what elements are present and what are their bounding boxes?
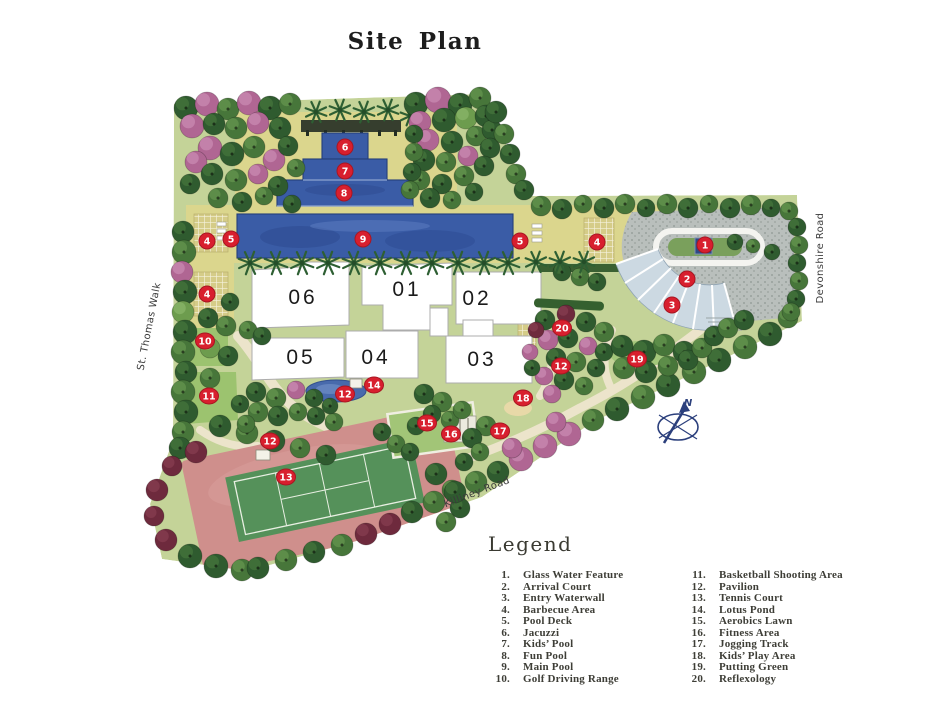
svg-text:18: 18	[516, 393, 530, 404]
map-marker-9: 9	[355, 231, 371, 247]
tree-icon	[764, 244, 780, 260]
tree-icon	[287, 159, 305, 177]
tree-icon	[275, 549, 297, 571]
tree-icon	[788, 218, 806, 236]
map-marker-5: 5	[512, 233, 528, 249]
legend-item-number: 19.	[682, 661, 706, 673]
tree-icon	[423, 491, 445, 513]
tree-icon	[746, 239, 760, 253]
map-marker-15: 15	[418, 415, 437, 431]
flowering-tree-icon	[355, 523, 377, 545]
tree-icon	[303, 541, 325, 563]
svg-text:12: 12	[263, 436, 276, 447]
map-marker-8: 8	[336, 185, 352, 201]
tree-icon	[266, 388, 286, 408]
tree-icon	[576, 312, 596, 332]
tree-icon	[405, 143, 423, 161]
legend-item-label: Main Pool	[523, 661, 573, 673]
tree-icon	[658, 356, 678, 376]
legend-item-number: 6.	[486, 627, 510, 639]
tree-icon	[325, 413, 343, 431]
tree-icon	[175, 361, 197, 383]
legend-item-number: 10.	[486, 673, 510, 685]
svg-text:12: 12	[554, 361, 567, 372]
svg-text:4: 4	[204, 236, 211, 247]
road-label: St. Thomas Walk	[136, 282, 164, 372]
tree-icon	[595, 343, 613, 361]
flowering-tree-icon	[162, 456, 182, 476]
flowering-tree-icon	[546, 412, 566, 432]
legend-item: 7.Kids’ Pool	[486, 638, 682, 650]
tree-icon	[180, 174, 200, 194]
tree-icon	[552, 199, 572, 219]
flowering-tree-icon	[533, 434, 557, 458]
tree-icon	[582, 409, 604, 431]
legend-item-label: Reflexology	[719, 673, 776, 685]
map-marker-5: 5	[223, 231, 239, 247]
map-marker-17: 17	[491, 423, 510, 439]
building-number: 03	[467, 348, 496, 371]
legend-item-number: 1.	[486, 569, 510, 581]
tree-icon	[605, 397, 629, 421]
legend-item-label: Pool Deck	[523, 615, 572, 627]
legend-item: 18.Kids’ Play Area	[682, 650, 843, 662]
tree-icon	[414, 384, 434, 404]
tree-icon	[733, 335, 757, 359]
svg-text:1: 1	[702, 240, 709, 251]
tree-icon	[471, 443, 489, 461]
tree-icon	[575, 377, 593, 395]
tree-icon	[268, 406, 288, 426]
tree-icon	[243, 136, 265, 158]
svg-text:3: 3	[669, 300, 676, 311]
map-marker-2: 2	[679, 271, 695, 287]
tree-icon	[432, 108, 456, 132]
tree-icon	[221, 293, 239, 311]
flowering-tree-icon	[195, 92, 219, 116]
tree-icon	[401, 501, 423, 523]
flowering-tree-icon	[155, 529, 177, 551]
tree-icon	[588, 273, 606, 291]
legend-item-label: Entry Waterwall	[523, 592, 605, 604]
svg-text:16: 16	[444, 429, 458, 440]
tree-icon	[727, 234, 743, 250]
tree-icon	[220, 142, 244, 166]
tree-icon	[204, 554, 228, 578]
svg-text:20: 20	[555, 323, 569, 334]
tree-icon	[403, 163, 421, 181]
legend-item: 1.Glass Water Feature	[486, 569, 682, 581]
tree-icon	[231, 395, 249, 413]
legend-item-number: 11.	[682, 569, 706, 581]
map-marker-4: 4	[589, 234, 605, 250]
tree-icon	[474, 156, 494, 176]
legend-item: 11.Basketball Shooting Area	[682, 569, 843, 581]
flowering-tree-icon	[522, 344, 538, 360]
svg-text:5: 5	[228, 234, 235, 245]
tree-icon	[441, 131, 463, 153]
flowering-tree-icon	[543, 385, 561, 403]
map-marker-19: 19	[628, 351, 647, 367]
flowering-tree-icon	[237, 91, 261, 115]
flowering-tree-icon	[171, 261, 193, 283]
flowering-tree-icon	[579, 337, 597, 355]
tree-icon	[172, 240, 196, 264]
map-marker-7: 7	[337, 163, 353, 179]
legend-item-number: 14.	[682, 604, 706, 616]
svg-text:8: 8	[341, 188, 348, 199]
legend-column: 1.Glass Water Feature2.Arrival Court3.En…	[486, 569, 682, 684]
tree-icon	[594, 322, 614, 342]
tree-icon	[720, 198, 740, 218]
legend-item-label: Aerobics Lawn	[719, 615, 793, 627]
legend-item-label: Kids’ Pool	[523, 638, 573, 650]
tree-icon	[246, 382, 266, 402]
flowering-tree-icon	[528, 322, 544, 338]
legend-item-number: 15.	[682, 615, 706, 627]
legend-item: 2.Arrival Court	[486, 581, 682, 593]
legend-item-number: 5.	[486, 615, 510, 627]
svg-text:17: 17	[493, 426, 506, 437]
tree-icon	[788, 254, 806, 272]
flowering-tree-icon	[185, 441, 207, 463]
tree-icon	[373, 423, 391, 441]
building-number: 05	[286, 346, 315, 369]
map-marker-13: 13	[277, 469, 296, 485]
legend-item: 10.Golf Driving Range	[486, 673, 682, 685]
tree-icon	[237, 415, 255, 433]
legend-item: 20.Reflexology	[682, 673, 843, 685]
legend-item-label: Basketball Shooting Area	[719, 569, 843, 581]
legend-item-label: Barbecue Area	[523, 604, 595, 616]
tree-icon	[656, 373, 680, 397]
tree-icon	[587, 359, 605, 377]
svg-text:10: 10	[198, 336, 212, 347]
legend-item: 13.Tennis Court	[682, 592, 843, 604]
legend: Legend 1.Glass Water Feature2.Arrival Co…	[486, 532, 926, 684]
tree-icon	[253, 327, 271, 345]
legend-item: 9.Main Pool	[486, 661, 682, 673]
svg-text:11: 11	[202, 391, 215, 402]
legend-item: 5.Pool Deck	[486, 615, 682, 627]
tree-icon	[283, 195, 301, 213]
legend-item-number: 17.	[682, 638, 706, 650]
tree-icon	[216, 316, 236, 336]
legend-item-number: 18.	[682, 650, 706, 662]
tree-icon	[401, 443, 419, 461]
tree-icon	[172, 301, 194, 323]
flowering-tree-icon	[248, 164, 268, 184]
tree-icon	[700, 195, 718, 213]
svg-text:19: 19	[630, 354, 643, 365]
tree-icon	[436, 152, 456, 172]
map-marker-20: 20	[553, 320, 572, 336]
tree-icon	[465, 183, 483, 201]
tree-icon	[209, 415, 231, 437]
tree-icon	[316, 445, 336, 465]
tree-icon	[405, 125, 423, 143]
legend-item-label: Arrival Court	[523, 581, 591, 593]
svg-text:14: 14	[367, 380, 381, 391]
svg-text:13: 13	[279, 472, 292, 483]
flowering-tree-icon	[502, 438, 522, 458]
map-marker-12: 12	[552, 358, 571, 374]
map-marker-11: 11	[200, 388, 219, 404]
flowering-tree-icon	[144, 506, 164, 526]
map-marker-12: 12	[336, 386, 355, 402]
building-number: 01	[392, 278, 421, 301]
legend-item-label: Pavilion	[719, 581, 759, 593]
tree-icon	[225, 169, 247, 191]
tree-icon	[782, 303, 800, 321]
legend-item: 14.Lotus Pond	[682, 604, 843, 616]
tree-icon	[514, 180, 534, 200]
legend-item-label: Fun Pool	[523, 650, 567, 662]
tree-icon	[198, 308, 218, 328]
tree-icon	[200, 368, 220, 388]
legend-item-label: Fitness Area	[719, 627, 780, 639]
tree-icon	[436, 512, 456, 532]
tree-icon	[780, 202, 798, 220]
svg-text:9: 9	[360, 234, 367, 245]
tree-icon	[657, 194, 677, 214]
flowering-tree-icon	[146, 479, 168, 501]
tree-icon	[494, 124, 514, 144]
flowering-tree-icon	[379, 513, 401, 535]
legend-item-label: Jacuzzi	[523, 627, 559, 639]
tree-icon	[790, 236, 808, 254]
svg-text:6: 6	[342, 142, 349, 153]
compass: N	[658, 398, 698, 443]
legend-item-number: 2.	[486, 581, 510, 593]
tree-icon	[741, 195, 761, 215]
legend-item: 12.Pavilion	[682, 581, 843, 593]
tree-icon	[174, 400, 198, 424]
tree-icon	[425, 463, 447, 485]
legend-item-label: Lotus Pond	[719, 604, 775, 616]
tree-icon	[762, 199, 780, 217]
tree-icon	[443, 191, 461, 209]
svg-text:15: 15	[420, 418, 433, 429]
map-marker-4: 4	[199, 233, 215, 249]
map-marker-1: 1	[697, 237, 713, 253]
tree-icon	[290, 438, 310, 458]
legend-item: 17.Jogging Track	[682, 638, 843, 650]
road-label: Devonshire Road	[815, 213, 826, 304]
flowering-tree-icon	[247, 112, 269, 134]
legend-item-label: Tennis Court	[719, 592, 783, 604]
map-marker-3: 3	[664, 297, 680, 313]
svg-text:7: 7	[342, 166, 349, 177]
legend-item-label: Jogging Track	[719, 638, 789, 650]
tree-icon	[615, 194, 635, 214]
tree-icon	[247, 557, 269, 579]
map-marker-6: 6	[337, 139, 353, 155]
legend-item: 3.Entry Waterwall	[486, 592, 682, 604]
tree-icon	[678, 198, 698, 218]
tree-icon	[653, 334, 675, 356]
tree-icon	[289, 403, 307, 421]
map-marker-12: 12	[261, 433, 280, 449]
tree-icon	[455, 453, 473, 471]
tree-icon	[420, 188, 440, 208]
legend-item-number: 12.	[682, 581, 706, 593]
svg-text:4: 4	[594, 237, 601, 248]
svg-text:4: 4	[204, 289, 211, 300]
tree-icon	[305, 389, 323, 407]
legend-item-label: Kids’ Play Area	[719, 650, 796, 662]
tree-icon	[171, 340, 195, 364]
legend-item-number: 20.	[682, 673, 706, 685]
block-link	[463, 320, 493, 336]
tree-icon	[201, 163, 223, 185]
map-marker-18: 18	[514, 390, 533, 406]
tree-icon	[255, 187, 273, 205]
tree-icon	[307, 407, 325, 425]
building-number: 06	[288, 286, 317, 309]
tree-icon	[454, 166, 474, 186]
map-marker-10: 10	[196, 333, 215, 349]
tree-icon	[208, 188, 228, 208]
tree-icon	[524, 360, 540, 376]
tree-icon	[455, 107, 477, 129]
legend-item-number: 13.	[682, 592, 706, 604]
tree-icon	[203, 113, 225, 135]
tree-icon	[173, 280, 197, 304]
legend-item-number: 3.	[486, 592, 510, 604]
svg-text:12: 12	[338, 389, 351, 400]
building-number: 04	[361, 346, 390, 369]
legend-item-number: 8.	[486, 650, 510, 662]
building-number: 02	[462, 287, 491, 310]
tree-icon	[790, 272, 808, 290]
legend-item: 19.Putting Green	[682, 661, 843, 673]
tree-icon	[531, 196, 551, 216]
tree-icon	[232, 192, 252, 212]
tree-icon	[594, 198, 614, 218]
tree-icon	[453, 401, 471, 419]
legend-item: 16.Fitness Area	[682, 627, 843, 639]
tree-icon	[631, 385, 655, 409]
tree-icon	[574, 195, 592, 213]
block-link	[430, 308, 448, 336]
tree-icon	[637, 199, 655, 217]
legend-item: 4.Barbecue Area	[486, 604, 682, 616]
site-plan-page: Site Plan	[0, 0, 943, 717]
legend-column: 11.Basketball Shooting Area12.Pavilion13…	[682, 569, 843, 684]
tree-icon	[758, 322, 782, 346]
legend-item-label: Glass Water Feature	[523, 569, 623, 581]
tree-icon	[331, 534, 353, 556]
legend-item-number: 4.	[486, 604, 510, 616]
legend-item-number: 9.	[486, 661, 510, 673]
legend-item: 15.Aerobics Lawn	[682, 615, 843, 627]
tree-icon	[279, 93, 301, 115]
svg-text:5: 5	[517, 236, 524, 247]
tree-icon	[734, 310, 754, 330]
compass-north-label: N	[684, 398, 693, 409]
pool-canopy	[301, 120, 401, 132]
legend-item-number: 7.	[486, 638, 510, 650]
tree-icon	[401, 181, 419, 199]
legend-item-label: Putting Green	[719, 661, 788, 673]
tree-icon	[225, 117, 247, 139]
svg-text:2: 2	[684, 274, 691, 285]
map-marker-14: 14	[365, 377, 384, 393]
map-marker-4: 4	[199, 286, 215, 302]
tree-icon	[218, 346, 238, 366]
tree-icon	[178, 544, 202, 568]
legend-heading: Legend	[488, 532, 926, 556]
legend-columns: 1.Glass Water Feature2.Arrival Court3.En…	[486, 569, 926, 684]
legend-item: 8.Fun Pool	[486, 650, 682, 662]
map-marker-16: 16	[442, 426, 461, 442]
flowering-tree-icon	[287, 381, 305, 399]
flowering-tree-icon	[180, 114, 204, 138]
tree-icon	[500, 144, 520, 164]
legend-item: 6.Jacuzzi	[486, 627, 682, 639]
tree-icon	[278, 136, 298, 156]
legend-item-number: 16.	[682, 627, 706, 639]
tree-icon	[485, 101, 507, 123]
tree-icon	[322, 398, 338, 414]
legend-item-label: Golf Driving Range	[523, 673, 619, 685]
